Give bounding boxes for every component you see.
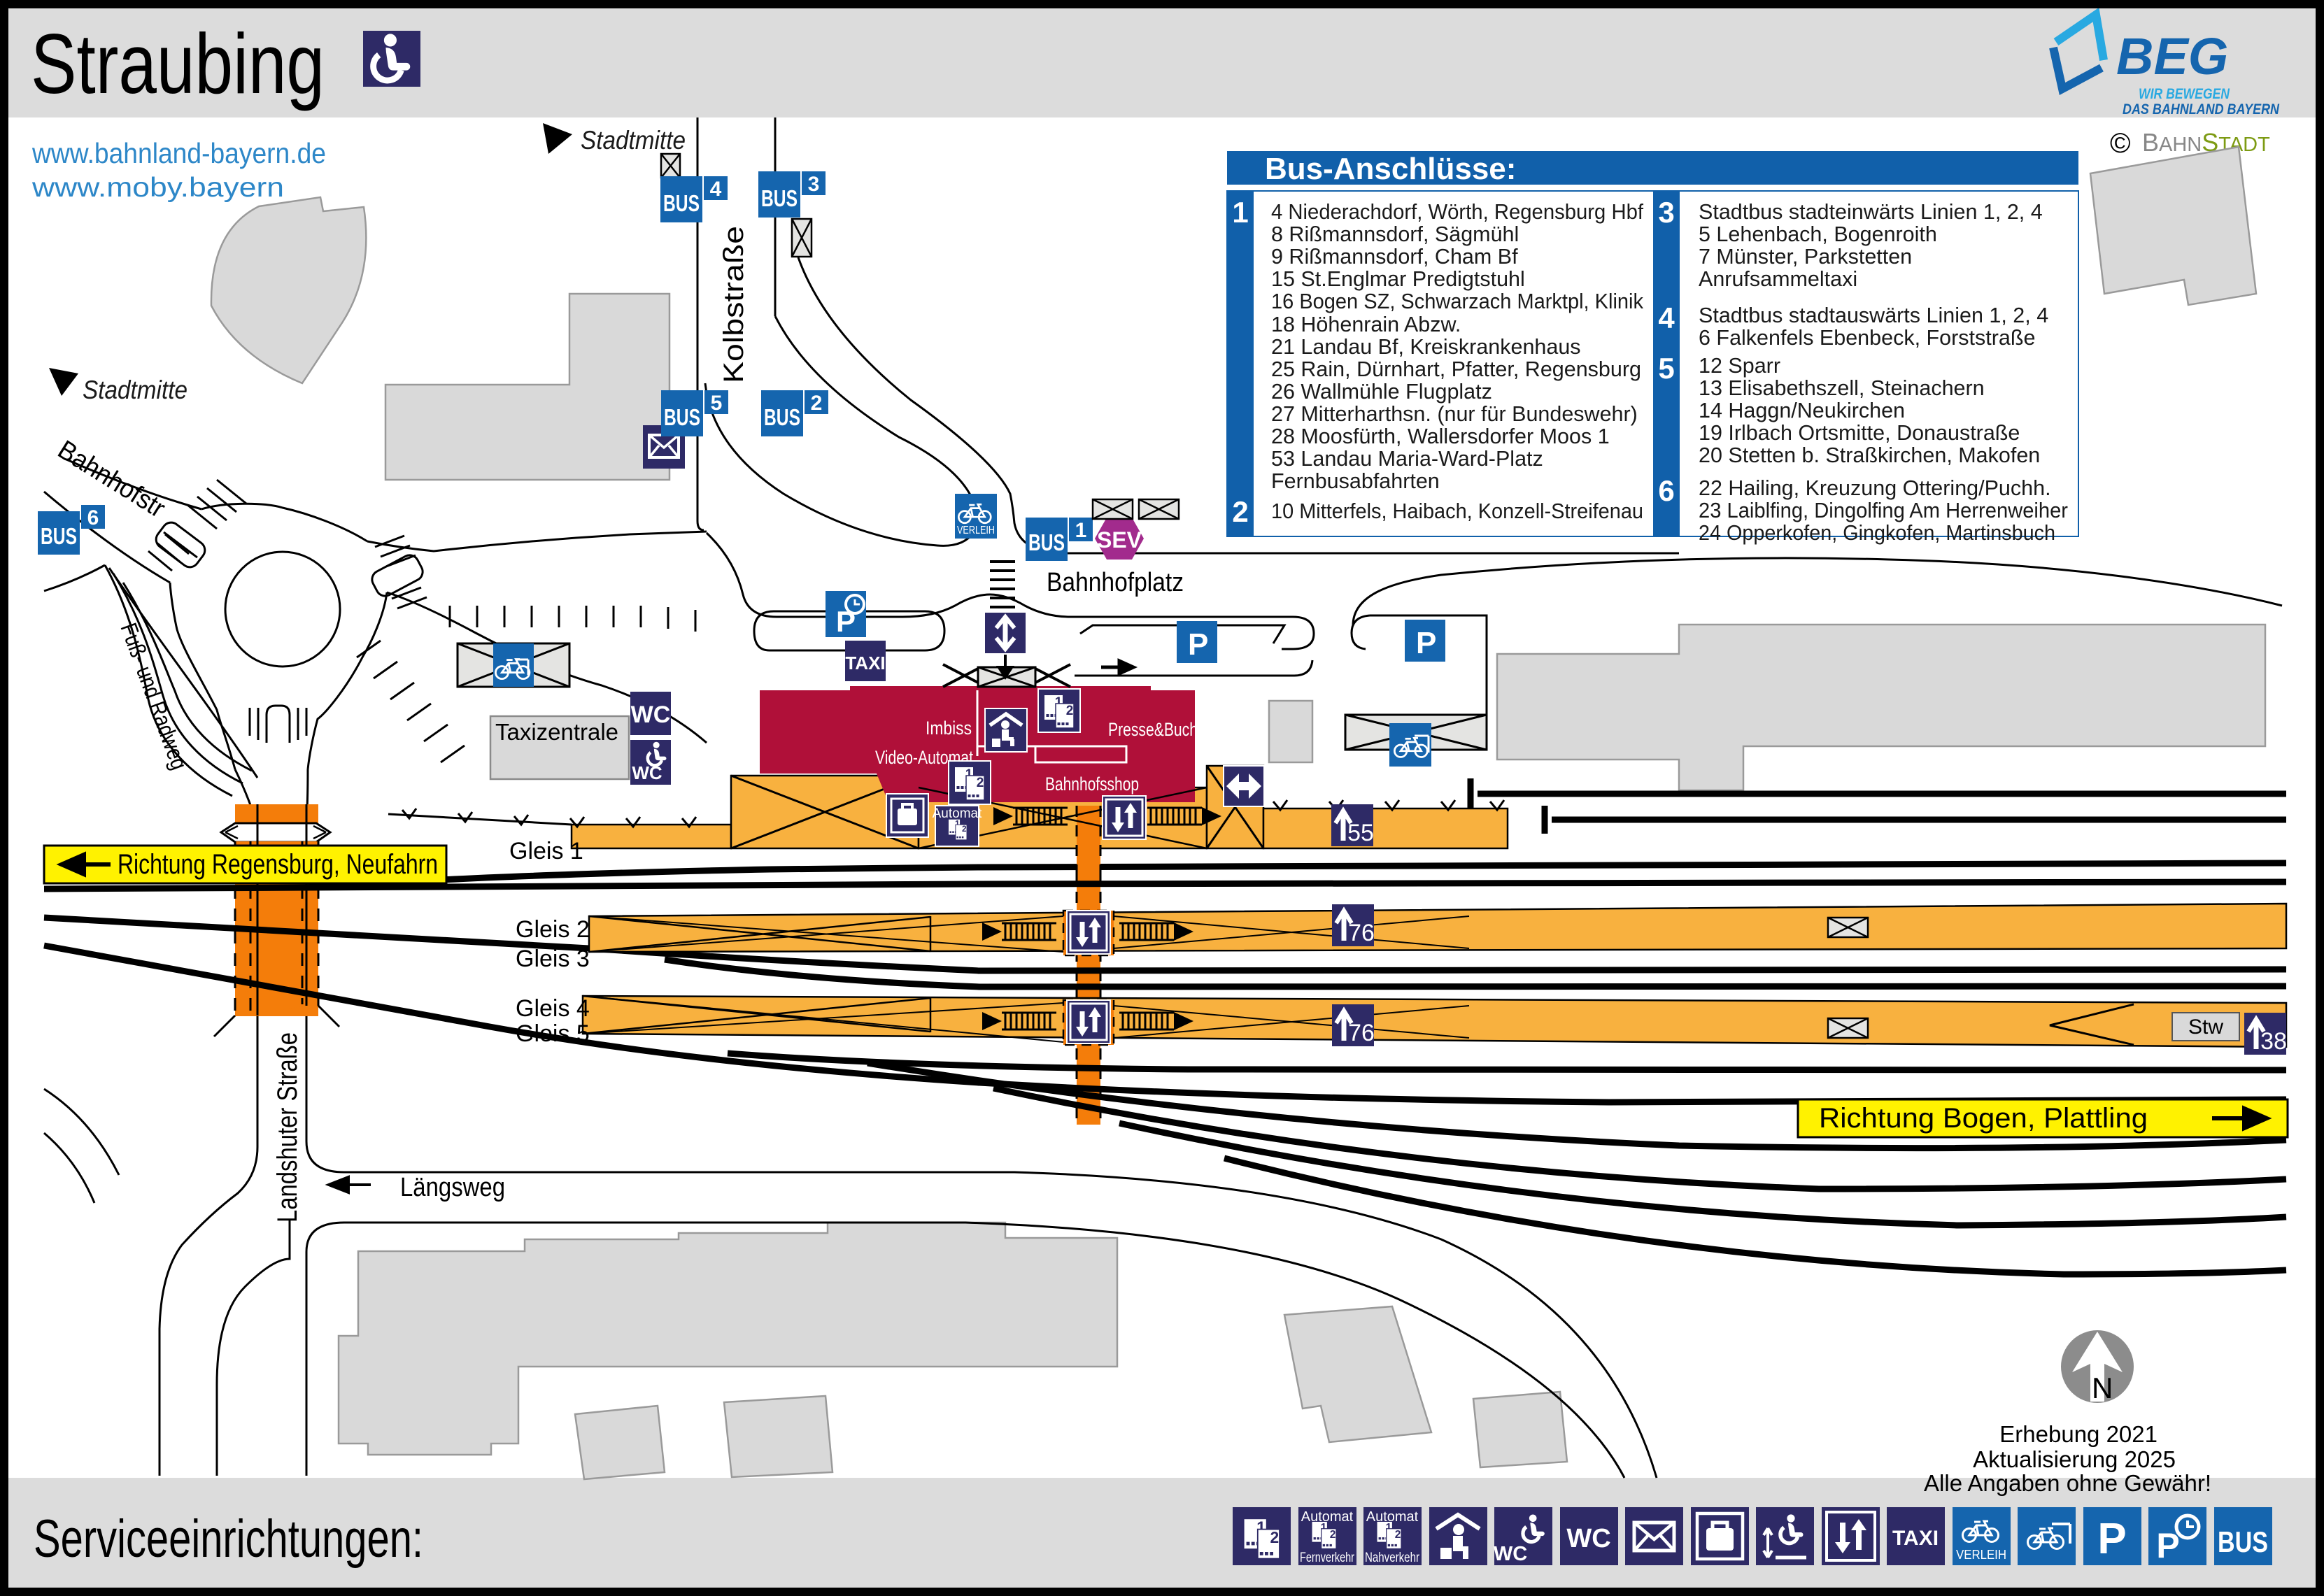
svg-text:Automat: Automat: [1301, 1509, 1354, 1525]
svg-text:Bus-Anschlüsse:: Bus-Anschlüsse:: [1265, 152, 1516, 186]
svg-text:SEV: SEV: [1097, 527, 1142, 553]
svg-text:Landshuter Straße: Landshuter Straße: [272, 1032, 303, 1223]
svg-text:3: 3: [1658, 196, 1674, 229]
svg-text:Gleis 2: Gleis 2: [516, 916, 590, 943]
svg-text:Aktualisierung 2025: Aktualisierung 2025: [1973, 1446, 2176, 1472]
svg-text:16 Bogen SZ, Schwarzach Marktp: 16 Bogen SZ, Schwarzach Marktpl, Klinik: [1271, 290, 1644, 313]
svg-text:22 Hailing, Kreuzung Ottering/: 22 Hailing, Kreuzung Ottering/Puchh.: [1699, 476, 2051, 500]
svg-text:Stadtmitte: Stadtmitte: [581, 126, 686, 155]
svg-text:www.bahnland-bayern.de: www.bahnland-bayern.de: [31, 137, 326, 169]
svg-text:2: 2: [1232, 495, 1248, 528]
svg-text:4: 4: [1658, 301, 1675, 334]
svg-text:38: 38: [2260, 1028, 2287, 1055]
svg-text:Richtung Bogen, Plattling: Richtung Bogen, Plattling: [1819, 1103, 2148, 1134]
svg-text:4 Niederachdorf, Wörth, Regens: 4 Niederachdorf, Wörth, Regensburg Hbf: [1271, 200, 1643, 224]
svg-text:BUS: BUS: [764, 404, 800, 430]
svg-text:Stw: Stw: [2188, 1016, 2223, 1039]
svg-text:3: 3: [808, 173, 820, 196]
svg-text:21 Landau Bf, Kreiskrankenhaus: 21 Landau Bf, Kreiskrankenhaus: [1271, 335, 1581, 359]
svg-text:13 Elisabethszell, Steinachern: 13 Elisabethszell, Steinachern: [1699, 376, 1985, 400]
svg-text:P: P: [2097, 1515, 2126, 1563]
svg-text:Taxizentrale: Taxizentrale: [495, 719, 618, 745]
svg-text:20 Stetten b. Straßkirchen, Ma: 20 Stetten b. Straßkirchen, Makofen: [1699, 443, 2040, 467]
svg-text:WIR BEWEGEN: WIR BEWEGEN: [2139, 86, 2230, 102]
svg-text:DAS BAHNLAND BAYERN: DAS BAHNLAND BAYERN: [2123, 101, 2280, 117]
svg-text:Bahnhofplatz: Bahnhofplatz: [1047, 568, 1184, 597]
svg-text:2: 2: [811, 392, 823, 415]
svg-text:Stadtbus stadteinwärts Linien: Stadtbus stadteinwärts Linien 1, 2, 4: [1699, 200, 2043, 224]
svg-text:BUS: BUS: [761, 185, 798, 211]
svg-text:N: N: [2092, 1371, 2113, 1404]
svg-text:24 Opperkofen, Gingkofen, Mart: 24 Opperkofen, Gingkofen, Martinsbuch: [1699, 521, 2055, 545]
svg-text:26 Wallmühle Flugplatz: 26 Wallmühle Flugplatz: [1271, 380, 1492, 404]
svg-text:Automat: Automat: [1366, 1509, 1419, 1525]
svg-text:55: 55: [1347, 820, 1374, 846]
svg-text:BUS: BUS: [663, 190, 700, 216]
svg-text:7 Münster, Parkstetten: 7 Münster, Parkstetten: [1699, 245, 1912, 269]
svg-text:19 Irlbach Ortsmitte, Donaustr: 19 Irlbach Ortsmitte, Donaustraße: [1699, 421, 2020, 445]
svg-text:76: 76: [1348, 1020, 1375, 1046]
svg-text:Nahverkehr: Nahverkehr: [1365, 1551, 1420, 1565]
svg-text:6: 6: [1658, 474, 1674, 507]
svg-text:12 Sparr: 12 Sparr: [1699, 354, 1780, 378]
svg-text:Stadtmitte: Stadtmitte: [83, 376, 187, 404]
svg-text:Alle Angaben ohne Gewähr!: Alle Angaben ohne Gewähr!: [1924, 1470, 2211, 1496]
svg-text:P: P: [1416, 626, 1436, 660]
svg-text:Imbiss: Imbiss: [926, 718, 972, 739]
svg-text:Fernverkehr: Fernverkehr: [1300, 1551, 1355, 1565]
svg-text:5: 5: [711, 392, 723, 415]
svg-text:Gleis 4: Gleis 4: [516, 995, 590, 1022]
svg-text:TAXI: TAXI: [845, 653, 885, 674]
svg-text:TAXI: TAXI: [1892, 1527, 1939, 1550]
svg-text:WC: WC: [1566, 1524, 1610, 1553]
svg-text:Gleis 3: Gleis 3: [516, 946, 590, 972]
svg-text:76: 76: [1348, 920, 1375, 946]
svg-text:14 Haggn/Neukirchen: 14 Haggn/Neukirchen: [1699, 399, 1905, 422]
svg-text:VERLEIH: VERLEIH: [1956, 1548, 2006, 1562]
svg-text:6: 6: [87, 506, 99, 529]
svg-text:Stadtbus stadtauswärts Linien: Stadtbus stadtauswärts Linien 1, 2, 4: [1699, 304, 2048, 327]
svg-text:53 Landau Maria-Ward-Platz: 53 Landau Maria-Ward-Platz: [1271, 447, 1543, 471]
svg-text:BUS: BUS: [41, 523, 77, 549]
svg-text:1: 1: [1075, 519, 1087, 542]
svg-text:23 Laiblfing, Dingolfing Am He: 23 Laiblfing, Dingolfing Am Herrenweiher: [1699, 499, 2068, 522]
svg-text:8 Rißmannsdorf, Sägmühl: 8 Rißmannsdorf, Sägmühl: [1271, 222, 1519, 246]
svg-text:Serviceeinrichtungen:: Serviceeinrichtungen:: [34, 1509, 423, 1569]
svg-text:WC: WC: [631, 701, 671, 728]
svg-text:Anrufsammeltaxi: Anrufsammeltaxi: [1699, 267, 1857, 291]
svg-text:Fernbusabfahrten: Fernbusabfahrten: [1271, 469, 1440, 493]
svg-text:Straubing: Straubing: [31, 16, 325, 111]
svg-text:P: P: [1188, 627, 1208, 662]
svg-text:©: ©: [2110, 128, 2130, 159]
svg-text:10 Mitterfels, Haibach, Konzel: 10 Mitterfels, Haibach, Konzell-Streifen…: [1271, 499, 1643, 523]
svg-text:1: 1: [1232, 196, 1248, 229]
svg-text:9 Rißmannsdorf, Cham Bf: 9 Rißmannsdorf, Cham Bf: [1271, 245, 1518, 269]
svg-text:15 St.Englmar Predigtstuhl: 15 St.Englmar Predigtstuhl: [1271, 267, 1525, 291]
svg-text:www.moby.bayern: www.moby.bayern: [31, 173, 284, 203]
svg-text:VERLEIH: VERLEIH: [957, 525, 995, 536]
svg-text:Automat: Automat: [933, 806, 982, 821]
svg-text:25 Rain, Dürnhart, Pfatter, Re: 25 Rain, Dürnhart, Pfatter, Regensburg: [1271, 357, 1641, 381]
svg-text:BUS: BUS: [664, 404, 700, 430]
svg-text:4: 4: [710, 178, 722, 201]
svg-text:5: 5: [1658, 352, 1674, 385]
svg-text:28 Moosfürth, Wallersdorfer Mo: 28 Moosfürth, Wallersdorfer Moos 1: [1271, 425, 1610, 448]
svg-text:Längsweg: Längsweg: [400, 1173, 505, 1202]
svg-text:27 Mitterharthsn. (nur für Bun: 27 Mitterharthsn. (nur für Bundeswehr): [1271, 402, 1638, 426]
svg-text:P: P: [836, 605, 856, 638]
svg-text:Gleis 1: Gleis 1: [509, 838, 583, 864]
svg-text:Presse&Buch: Presse&Buch: [1108, 719, 1198, 740]
svg-text:Bahnhofsshop: Bahnhofsshop: [1045, 774, 1139, 795]
svg-text:18 Höhenrain Abzw.: 18 Höhenrain Abzw.: [1271, 313, 1461, 336]
svg-text:5 Lehenbach, Bogenroith: 5 Lehenbach, Bogenroith: [1699, 222, 1937, 246]
svg-text:Erhebung 2021: Erhebung 2021: [1999, 1421, 2158, 1447]
svg-text:Richtung Regensburg, Neufahrn: Richtung Regensburg, Neufahrn: [118, 849, 438, 880]
svg-text:Kolbstraße: Kolbstraße: [718, 226, 749, 383]
svg-text:BUS: BUS: [1028, 529, 1065, 555]
svg-text:WC: WC: [1494, 1543, 1527, 1565]
svg-text:BEG: BEG: [2116, 27, 2228, 85]
svg-text:BUS: BUS: [2218, 1525, 2268, 1558]
svg-text:6 Falkenfels Ebenbeck, Forstst: 6 Falkenfels Ebenbeck, Forststraße: [1699, 326, 2035, 350]
svg-text:Gleis 5: Gleis 5: [516, 1020, 590, 1047]
